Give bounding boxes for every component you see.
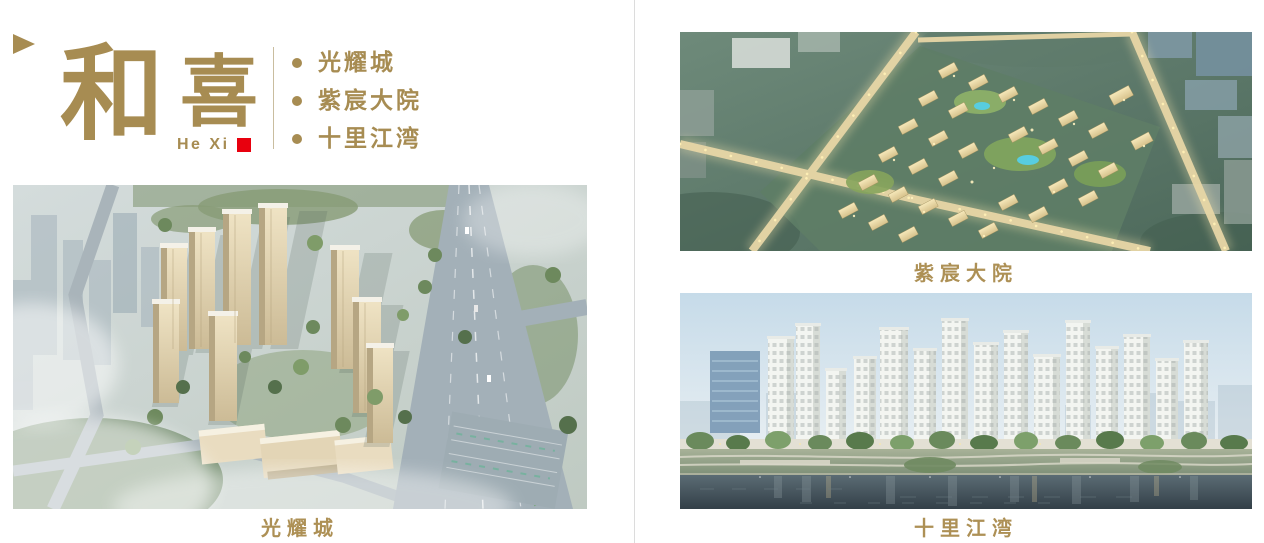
logo-char-secondary: 喜 (180, 54, 258, 132)
figure-caption: 紫宸大院 (680, 257, 1252, 286)
figure-caption: 十里江湾 (680, 512, 1252, 541)
project-label: 紫宸大院 (318, 88, 422, 114)
bullet-icon (292, 134, 302, 144)
list-item: 十里江湾 (292, 126, 422, 152)
bullet-icon (292, 58, 302, 68)
brochure-page: 和 喜 He Xi 光耀城 紫宸大院 十里江湾 (0, 0, 1264, 543)
list-item: 光耀城 (292, 50, 422, 76)
figure-caption: 光耀城 (13, 512, 587, 541)
brand-red-square-icon (237, 138, 251, 152)
project-label: 十里江湾 (318, 126, 422, 152)
guangyaocheng-rendering (13, 185, 587, 509)
project-list: 光耀城 紫宸大院 十里江湾 (292, 50, 422, 152)
figure-shilijiangwan (680, 293, 1252, 509)
shilijiangwan-rendering (680, 293, 1252, 509)
list-item: 紫宸大院 (292, 88, 422, 114)
figure-zichen (680, 32, 1252, 251)
triangle-icon (13, 34, 35, 54)
zichen-rendering (680, 32, 1252, 251)
figure-guangyaocheng (13, 185, 587, 509)
logo-romanized: He Xi (177, 136, 230, 154)
brand-vertical-rule (273, 47, 274, 149)
project-label: 光耀城 (318, 50, 396, 76)
bullet-icon (292, 96, 302, 106)
logo-char-primary: 和 (60, 44, 164, 148)
center-divider (634, 0, 635, 543)
